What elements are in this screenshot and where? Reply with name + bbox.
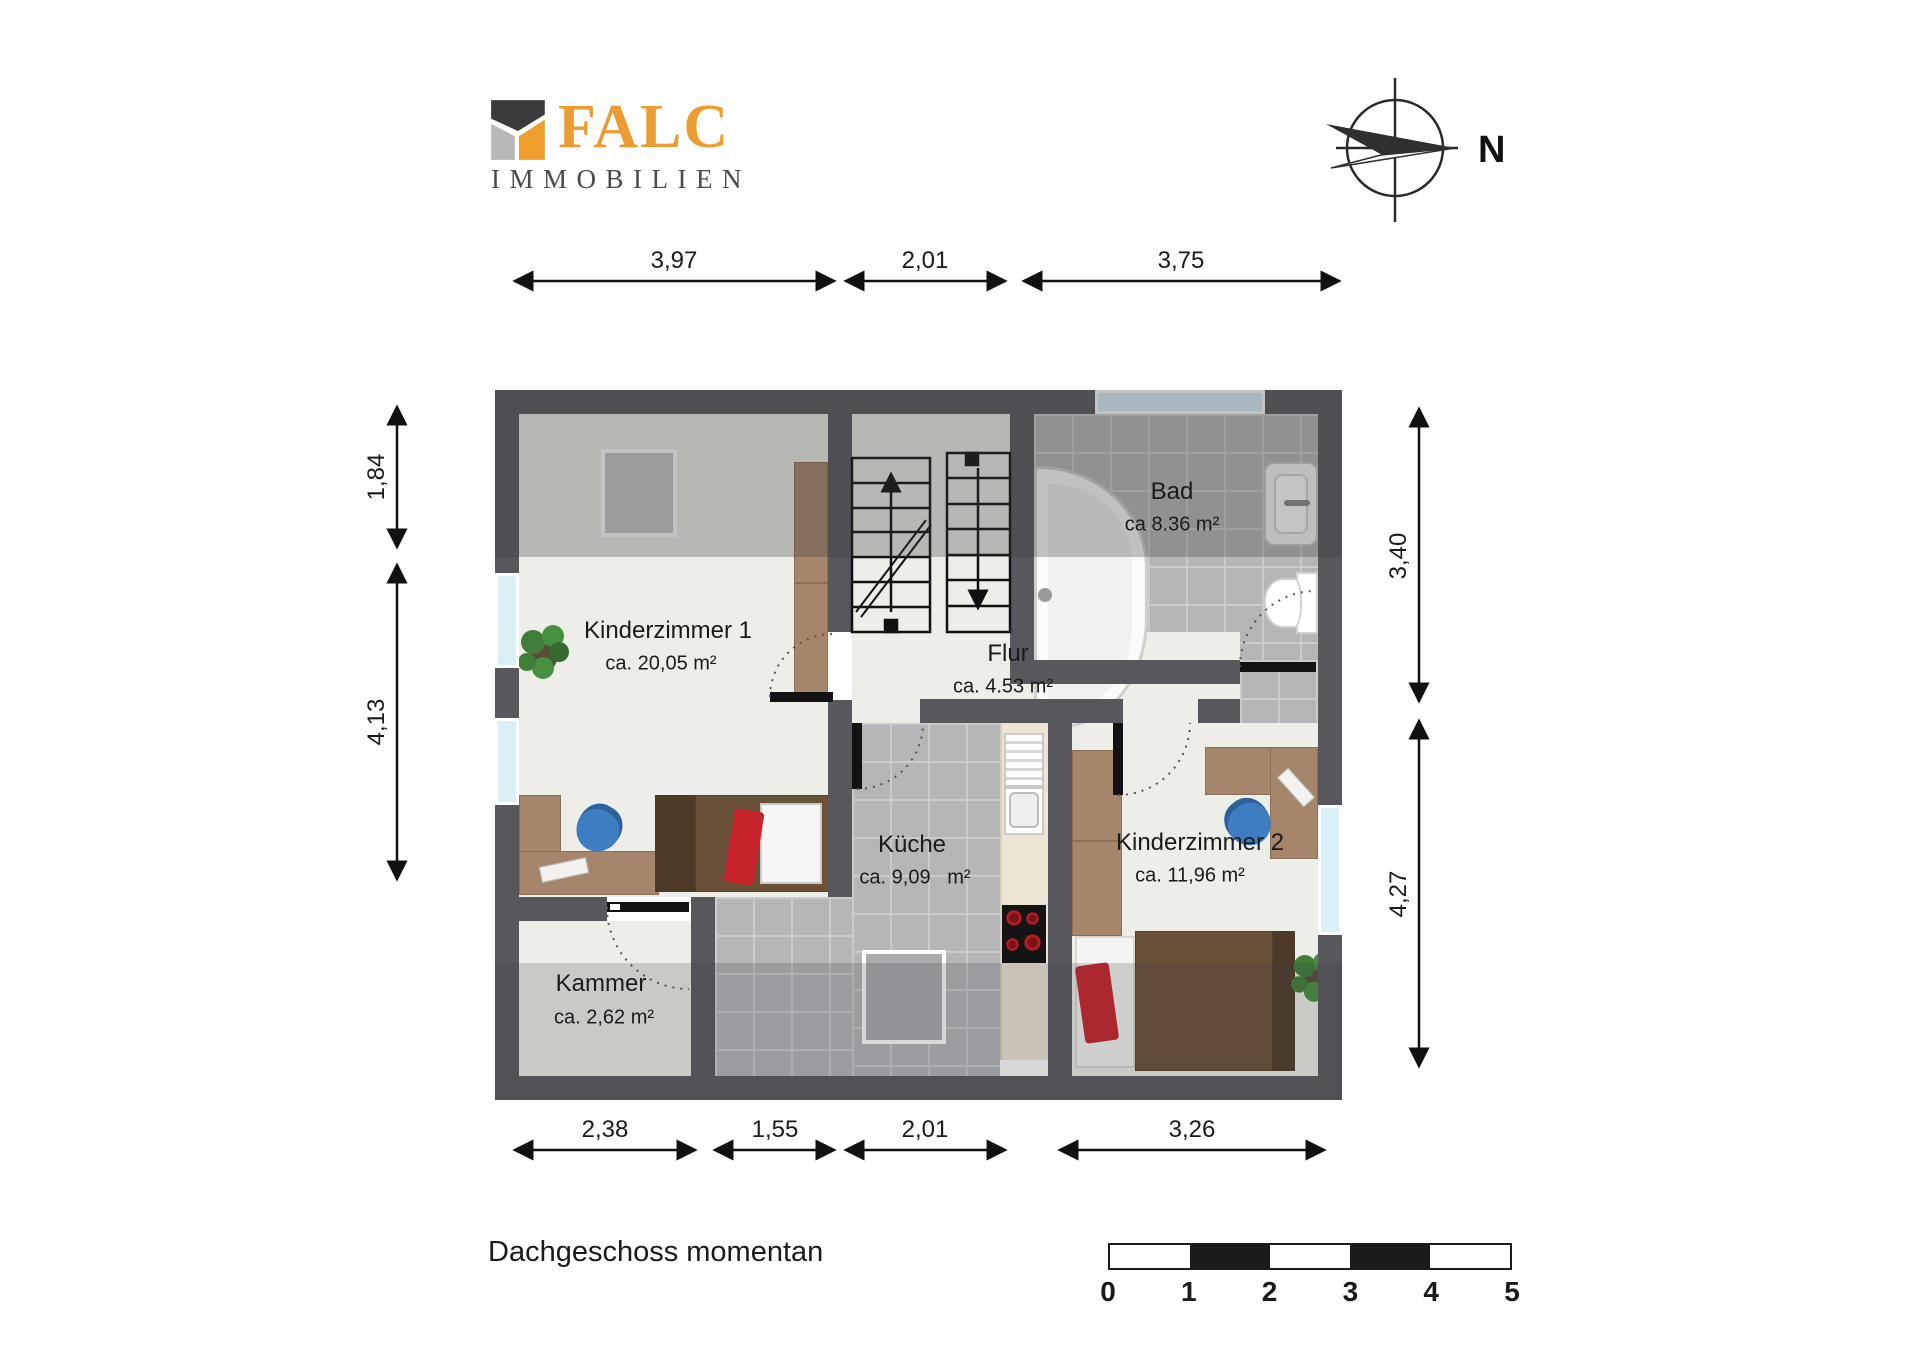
- scale-tick: 0: [1100, 1276, 1116, 1308]
- room-area: ca. 11,96 m²: [1135, 865, 1245, 888]
- scale-segment: [1110, 1245, 1190, 1268]
- room-area: ca. 20,05 m²: [605, 653, 716, 676]
- dim-label-bottom: 2,38: [582, 1116, 629, 1144]
- scale-segment: [1270, 1245, 1350, 1268]
- dim-label-top: 2,01: [902, 247, 949, 275]
- dim-label-left: 4,13: [363, 699, 391, 746]
- scale-tick: 2: [1262, 1276, 1278, 1308]
- room-name: Kinderzimmer 1: [584, 617, 752, 645]
- room-name: Kammer: [556, 970, 647, 998]
- dim-label-bottom: 1,55: [752, 1116, 799, 1144]
- scale-segment: [1350, 1245, 1430, 1268]
- scale-numbers: 0 1 2 3 4 5: [1108, 1276, 1512, 1310]
- scale-segment: [1190, 1245, 1270, 1268]
- room-area: ca 8.36 m²: [1125, 514, 1219, 537]
- scale-tick: 5: [1504, 1276, 1520, 1308]
- dim-label-right: 4,27: [1385, 871, 1413, 918]
- floorplan-page: FALC IMMOBILIEN N: [0, 0, 1920, 1357]
- scale-tick: 1: [1181, 1276, 1197, 1308]
- room-name: Küche: [878, 831, 946, 859]
- room-name: Kinderzimmer 2: [1116, 829, 1284, 857]
- plan-title: Dachgeschoss momentan: [488, 1236, 823, 1269]
- scale-tick: 4: [1423, 1276, 1439, 1308]
- dim-label-bottom: 2,01: [902, 1116, 949, 1144]
- dim-label-bottom: 3,26: [1169, 1116, 1216, 1144]
- room-name: Bad: [1151, 478, 1194, 506]
- door-arcs: [607, 591, 1316, 989]
- dim-label-top: 3,97: [651, 247, 698, 275]
- scale-segment: [1430, 1245, 1510, 1268]
- dimension-lines: [397, 281, 1419, 1150]
- dim-label-right: 3,40: [1385, 533, 1413, 580]
- dim-label-top: 3,75: [1158, 247, 1205, 275]
- room-area: ca. 2,62 m²: [554, 1007, 654, 1030]
- dim-label-left: 1,84: [363, 454, 391, 501]
- scale-bar: [1108, 1243, 1512, 1270]
- room-area: ca. 4.53 m²: [953, 676, 1053, 699]
- room-name: Flur: [987, 640, 1028, 668]
- scale-tick: 3: [1343, 1276, 1359, 1308]
- room-area: ca. 9,09 m²: [859, 867, 970, 890]
- staircase-icon: [852, 453, 1010, 632]
